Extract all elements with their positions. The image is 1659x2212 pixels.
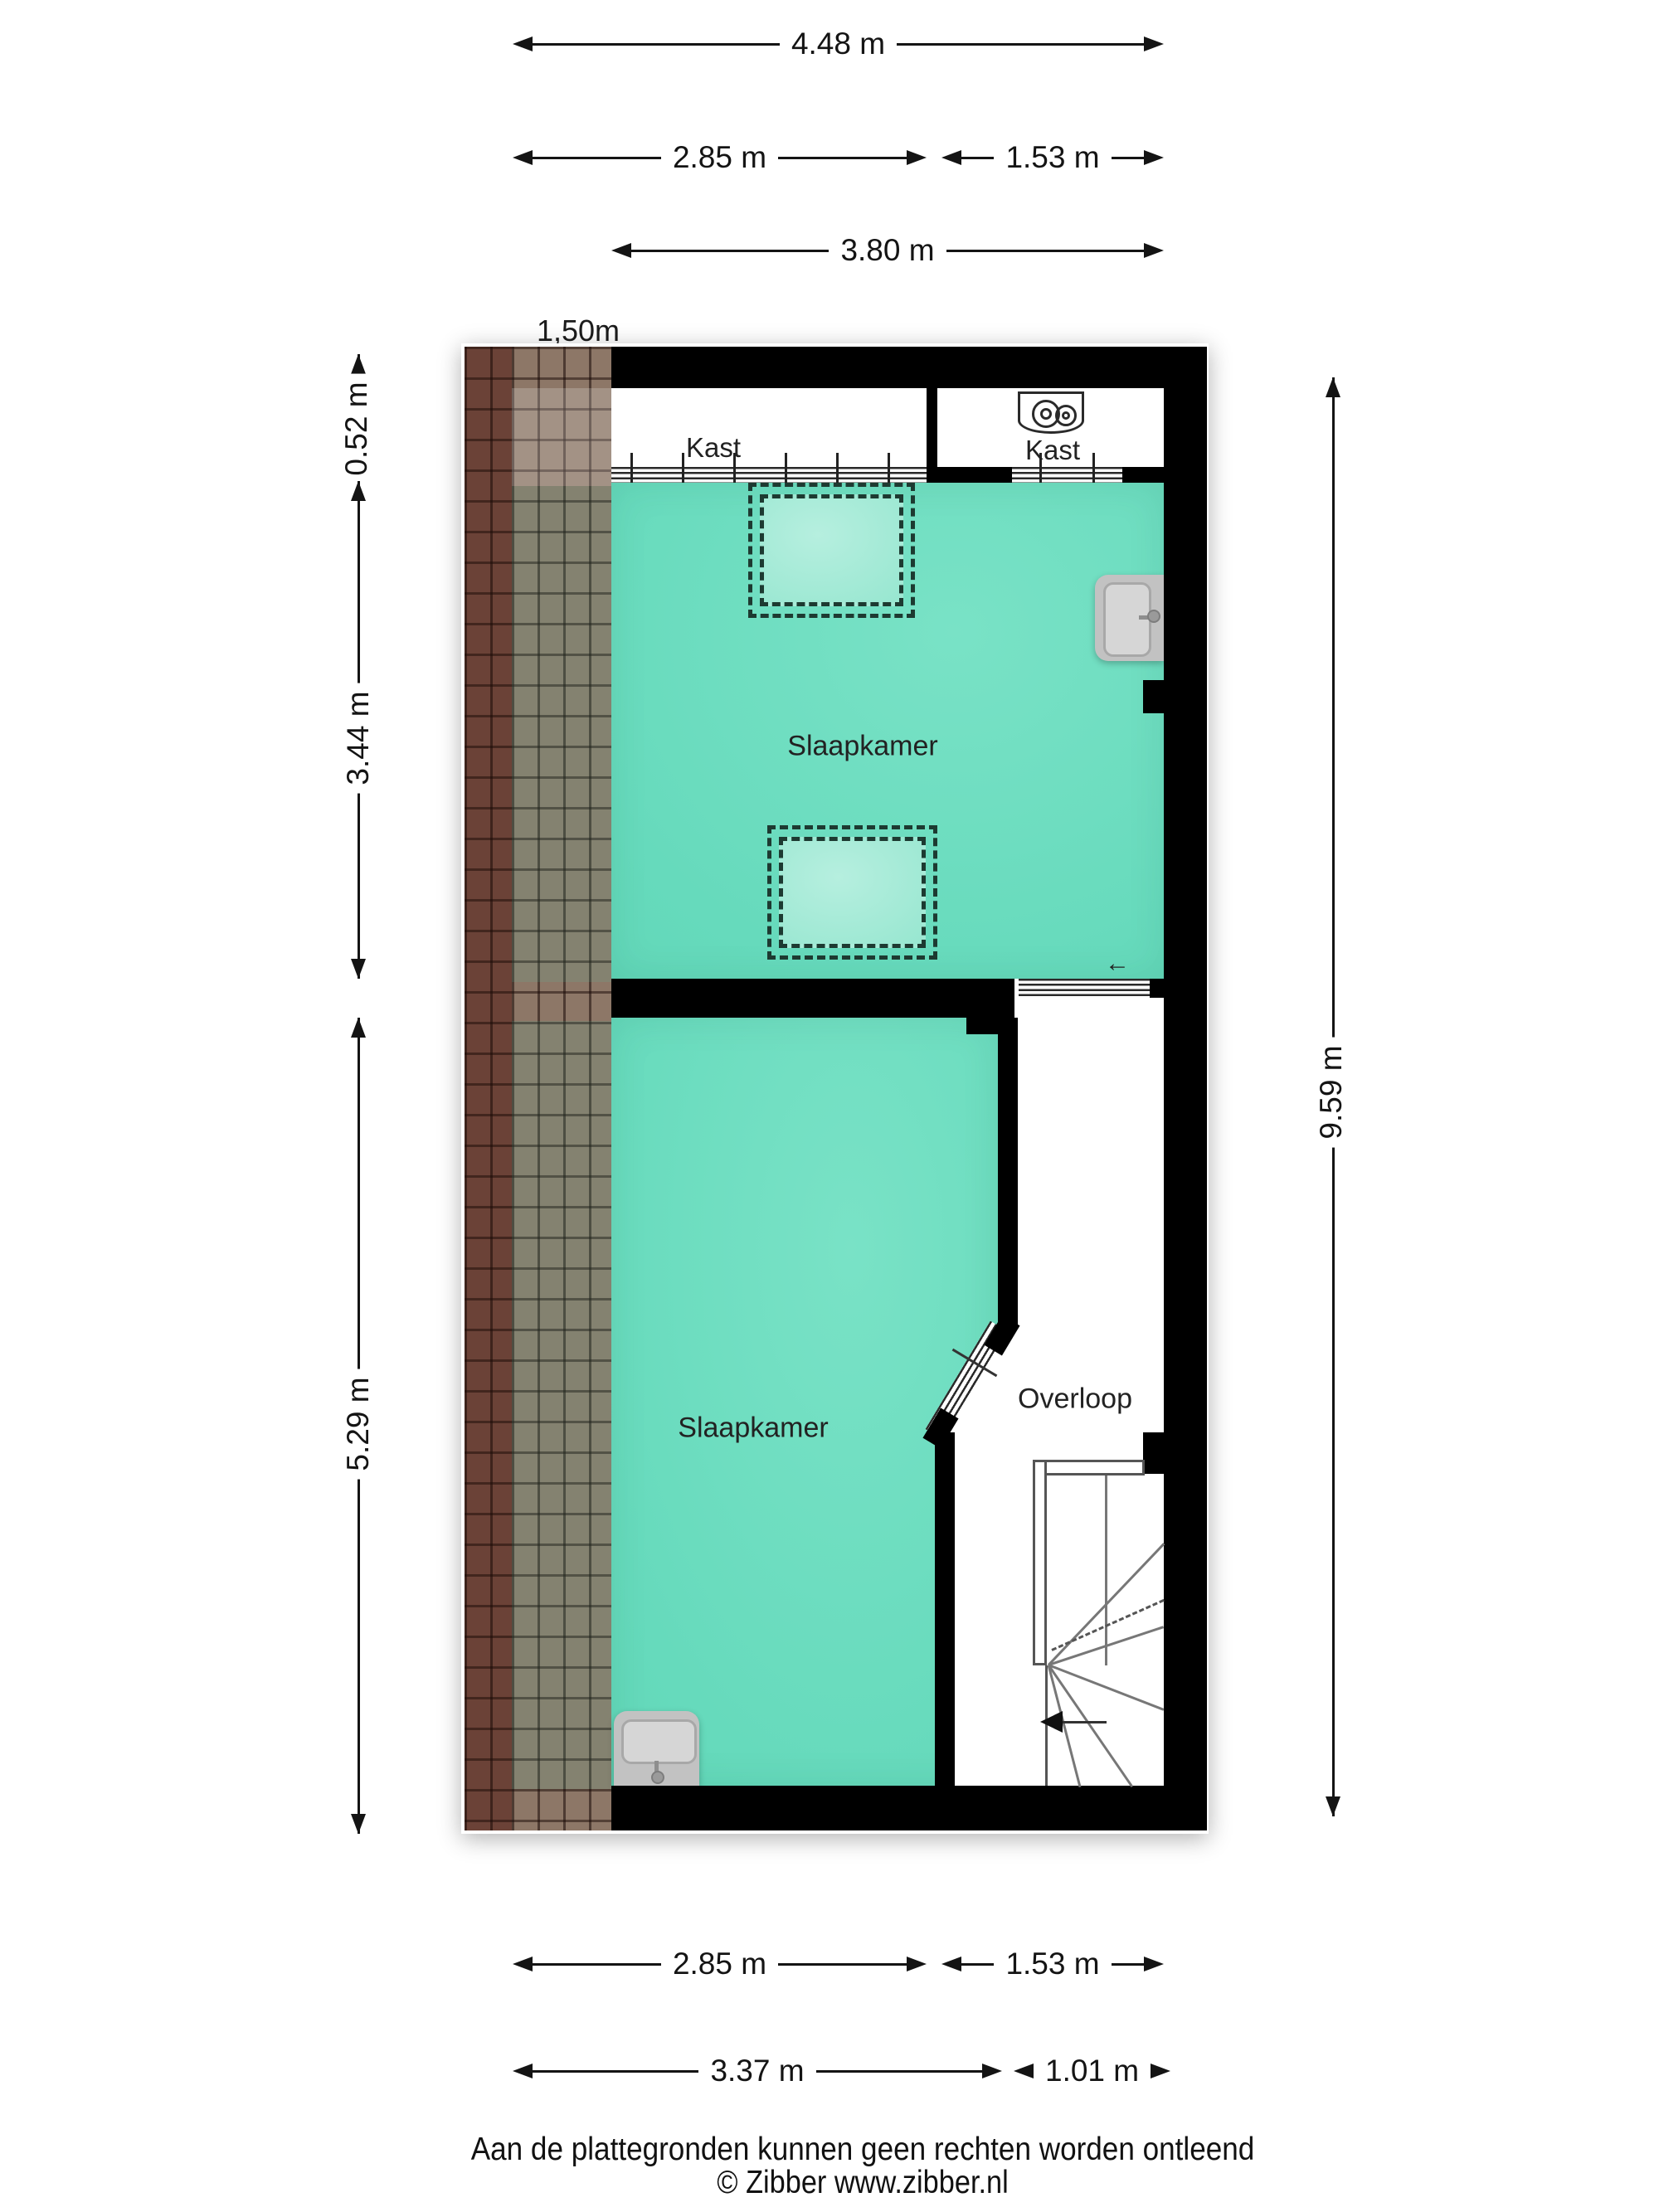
footer-credit: © Zibber www.zibber.nl xyxy=(323,2165,1403,2201)
wall-right xyxy=(1164,347,1207,1830)
arrow-right-icon xyxy=(1144,36,1164,51)
wall-top xyxy=(611,347,1207,388)
dim-label: 1.53 m xyxy=(994,140,1111,175)
wall-bottom xyxy=(611,1786,1207,1830)
roof-tiles-strip xyxy=(465,347,611,1830)
skylight xyxy=(767,825,937,960)
arrow-left-icon xyxy=(611,243,631,258)
arrow-right-icon xyxy=(1144,150,1164,165)
dim-label: 2.85 m xyxy=(661,140,778,175)
dim-label-total-depth: 9.59 m xyxy=(1311,1037,1352,1147)
door-direction-arrow: ← xyxy=(1105,950,1130,978)
arrow-down-icon xyxy=(351,1814,366,1834)
arrow-right-icon xyxy=(907,1957,927,1971)
wall-stub-stairs xyxy=(1143,1432,1164,1474)
room-label-slaapkamer-bottom: Slaapkamer xyxy=(678,1412,828,1445)
stair-tread-line xyxy=(1105,1475,1107,1665)
dim-label: 2.85 m xyxy=(661,1947,778,1981)
dim-stairs-width: 1.01 m xyxy=(1014,2055,1164,2087)
stair-railing-top xyxy=(1033,1460,1145,1475)
dim-bedroom-top-floor-width: 3.80 m xyxy=(611,235,1164,266)
dim-label: 4.48 m xyxy=(780,27,897,61)
dim-label: 1.53 m xyxy=(994,1947,1111,1981)
dim-bedroom-bottom-width: 2.85 m xyxy=(513,1948,927,1980)
wall-bedroom-bottom-right-lower xyxy=(935,1432,955,1786)
arrow-left-icon xyxy=(941,1957,961,1971)
arrow-down-icon xyxy=(351,959,366,979)
stair-railing-left xyxy=(1033,1460,1047,1665)
dim-label: 1.01 m xyxy=(1034,2054,1151,2088)
room-label-kast-left: Kast xyxy=(686,432,741,464)
arrow-left-icon xyxy=(941,150,961,165)
wardrobe-front-right xyxy=(1012,467,1122,483)
stairs-down-arrow-icon xyxy=(1040,1711,1063,1733)
room-label-slaapkamer-top: Slaapkamer xyxy=(787,731,937,763)
dim-total-width: 4.48 m xyxy=(513,28,1164,60)
wall-passage-end xyxy=(1150,979,1164,998)
roof-tiles-over-room xyxy=(512,347,611,1830)
wall-under-closet-a xyxy=(927,467,1012,483)
wardrobe-front-left xyxy=(611,467,927,483)
sink xyxy=(1095,575,1164,661)
boiler-ring-icon xyxy=(1055,405,1077,426)
floorplan-drawing: ← Kast Kast Slaapkame xyxy=(461,343,1209,1834)
floorplan-page: 4.48 m 2.85 m 1.53 m 3.80 m 1,50m 0.52 m… xyxy=(0,0,1659,2212)
arrow-left-icon xyxy=(513,150,533,165)
footer-disclaimer: Aan de plattegronden kunnen geen rechten… xyxy=(310,2132,1415,2168)
dim-label-closet-depth: 0.52 m xyxy=(336,373,377,484)
arrow-right-icon xyxy=(1144,1957,1164,1971)
arrow-down-icon xyxy=(1326,1796,1340,1816)
arrow-left-icon xyxy=(513,36,533,51)
wall-middle-step xyxy=(966,1018,1018,1034)
sink xyxy=(614,1711,699,1786)
dim-bedroom-top-width: 2.85 m xyxy=(513,142,927,173)
arrow-left-icon xyxy=(513,1957,533,1971)
room-label-overloop: Overloop xyxy=(1018,1383,1132,1416)
dim-label-bedroom-top-depth: 3.44 m xyxy=(338,683,379,793)
wall-stub-sink xyxy=(1143,680,1164,713)
passage-threshold-top xyxy=(1019,979,1150,998)
wall-under-closet-b xyxy=(1122,467,1164,483)
arrow-right-icon xyxy=(982,2064,1002,2078)
dim-landing-width: 1.53 m xyxy=(941,1948,1164,1980)
roof-tiles-eave xyxy=(465,347,512,1830)
wall-closet-divider xyxy=(927,388,937,467)
dim-label: 3.37 m xyxy=(698,2054,815,2088)
wall-middle xyxy=(611,979,1014,1018)
arrow-left-icon xyxy=(1014,2064,1034,2078)
dim-bedroom-bottom-total-width: 3.37 m xyxy=(513,2055,1002,2087)
room-label-kast-right: Kast xyxy=(1025,435,1080,466)
boiler-unit xyxy=(1018,391,1084,434)
closet-left-floor xyxy=(611,388,927,467)
wall-bedroom-bottom-right-upper xyxy=(998,1034,1018,1329)
skylight xyxy=(748,483,915,618)
arrow-right-icon xyxy=(1151,2064,1170,2078)
arrow-right-icon xyxy=(907,150,927,165)
dim-closet-right-width: 1.53 m xyxy=(941,142,1164,173)
arrow-right-icon xyxy=(1144,243,1164,258)
arrow-left-icon xyxy=(513,2064,533,2078)
dim-label: 3.80 m xyxy=(829,233,946,268)
dim-label-bedroom-bottom-depth: 5.29 m xyxy=(338,1369,379,1479)
